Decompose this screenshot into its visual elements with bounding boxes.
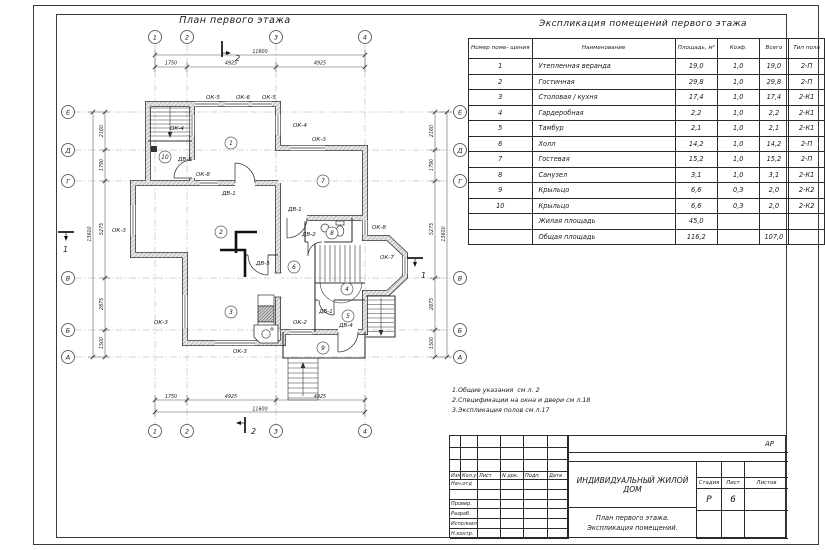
section-arrow	[236, 421, 241, 425]
room-number: 1	[229, 141, 233, 147]
staff-empty-cell	[548, 500, 568, 510]
staff-empty-cell	[478, 500, 501, 510]
titleblock-col-header: Подп.	[524, 472, 548, 480]
spec-cell-value: 6,6	[675, 198, 717, 214]
axis-bubble-label: Д	[64, 146, 70, 154]
axis-bubble-label: Б	[66, 326, 71, 334]
amendment-cell	[548, 460, 568, 472]
project-code: АР	[765, 440, 774, 448]
title-block: Изм.Кол.учЛистN док.Подп.Дата Нач.отдПро…	[449, 435, 786, 538]
axis-bubble-label: Б	[458, 326, 463, 334]
plan-label: ОК-5	[262, 95, 276, 101]
spec-cell-name: Крыльцо	[532, 183, 675, 199]
dim-total-text: 13600	[87, 226, 93, 241]
spec-cell-value: 1,0	[717, 105, 759, 121]
spec-cell-value: 17,4	[675, 90, 717, 106]
amendment-cell	[461, 460, 478, 472]
spec-cell-value: 0,3	[717, 183, 759, 199]
stage-label: Стадия	[697, 478, 722, 489]
spec-cell-value: 15,2	[675, 152, 717, 168]
spec-cell-name: Крыльцо	[532, 198, 675, 214]
axis-bubble-label: А	[65, 353, 70, 361]
spec-cell-name: Тамбур	[532, 121, 675, 137]
spec-row: 1Утепленная веранда19,01,019,02-П	[469, 59, 825, 75]
axis-bubble-label: 3	[274, 33, 278, 41]
staff-role-label: Провер.	[450, 500, 478, 510]
dim-total-text: 11600	[252, 49, 267, 55]
axis-bubble-label: 3	[274, 427, 278, 435]
spec-cell-value: 6	[469, 136, 533, 152]
spec-cell-value: 19,0	[675, 59, 717, 75]
spec-cell-value: 15,2	[759, 152, 789, 168]
sheet-label: Лист	[722, 478, 745, 489]
spec-cell-value: 2-К1	[789, 105, 825, 121]
spec-row: 7Гостевая15,21,015,22-П	[469, 152, 825, 168]
spec-cell-value	[469, 229, 533, 245]
dim-text: 2875	[429, 298, 435, 310]
amendment-cell	[524, 460, 548, 472]
spec-cell-name: Общая площадь	[532, 229, 675, 245]
plan-label: ОК-8	[196, 172, 210, 178]
spec-col-header: Коэф.	[717, 39, 759, 59]
sheet-number: 6	[722, 489, 745, 511]
amendment-cell	[478, 436, 501, 448]
section-number: 1	[421, 271, 426, 280]
plan-label: ДВ-1	[221, 191, 236, 197]
plan-label: ОК-5	[206, 95, 220, 101]
spec-cell-name: Гостинная	[532, 74, 675, 90]
spec-row: 8Санузел3,11,03,12-К1	[469, 167, 825, 183]
axis-bubble-label: 2	[185, 427, 189, 435]
staff-empty-cell	[501, 519, 524, 529]
spec-cell-name: Утепленная веранда	[532, 59, 675, 75]
spec-cell-value: 1,0	[717, 90, 759, 106]
axis-bubbles: 11223344ЕЕДДГГВВББАА	[62, 31, 467, 438]
spec-cell-value: 2-П	[789, 136, 825, 152]
spec-cell-value: 2,0	[759, 198, 789, 214]
spec-cell-value: 2-П	[789, 74, 825, 90]
room-number: 4	[345, 287, 349, 293]
staff-empty-cell	[478, 480, 501, 490]
amendment-cell	[450, 436, 461, 448]
staff-empty-cell	[548, 509, 568, 519]
note-line: 1.Общие указания см л. 2	[452, 386, 590, 396]
note-line: 2.Спецификации на окна и двери см л.18	[452, 396, 590, 406]
sheets-value	[745, 489, 788, 511]
note-line: 3.Экспликация полов см л.17	[452, 406, 590, 416]
dim-total-text: 11600	[252, 407, 267, 413]
plan-label: ОК-3	[154, 320, 168, 326]
plan-label: ОК-4	[170, 126, 184, 132]
spec-cell-value: 2-П	[789, 152, 825, 168]
spec-cell-value: 6,6	[675, 183, 717, 199]
spec-cell-value: 2-К1	[789, 90, 825, 106]
section-number: 2	[251, 427, 256, 436]
spec-cell-value: 2,2	[759, 105, 789, 121]
spec-col-header: Тип пола	[789, 39, 825, 59]
spec-row: 3Столовая / кухня17,41,017,42-К1	[469, 90, 825, 106]
staff-empty-cell	[501, 529, 524, 539]
staff-role-label: Исполнил	[450, 519, 478, 529]
drawing-sheet: { "plan": { "title": "План первого этажа…	[0, 0, 825, 550]
axis-bubble-label: 4	[363, 427, 367, 435]
spec-cell-value: 3	[469, 90, 533, 106]
titleblock-staff-rows: Нач.отдПровер.Разраб.ИсполнилН.контр.	[450, 480, 568, 539]
spec-cell-value: 45,0	[675, 214, 717, 230]
spec-cell-value: 107,0	[759, 229, 789, 245]
amendment-grid	[450, 436, 568, 472]
titleblock-right: АР ИНДИВИДУАЛЬНЫЙ ЖИЛОЙ ДОМ План первого…	[568, 436, 787, 539]
spec-row: 10Крыльцо6,60,32,02-К2	[469, 198, 825, 214]
spec-row: 6Холл14,21,014,22-П	[469, 136, 825, 152]
staff-empty-cell	[524, 519, 548, 529]
staff-role-label: Нач.отд	[450, 480, 478, 490]
room-number: 5	[346, 314, 350, 320]
spec-cell-name: Столовая / кухня	[532, 90, 675, 106]
section-arrow	[226, 51, 231, 55]
plan-label: ДВ-4	[338, 323, 353, 329]
amendment-cell	[450, 448, 461, 460]
plan-label: ОК-6	[236, 95, 250, 101]
spec-cell-value: 2,1	[675, 121, 717, 137]
dim-text: 5275	[429, 223, 435, 235]
spec-cell-value: 9	[469, 183, 533, 199]
spec-cell-value: 1,0	[717, 74, 759, 90]
axis-bubble-label: В	[66, 274, 71, 282]
staff-empty-cell	[548, 490, 568, 500]
staff-role-label: Разраб.	[450, 509, 478, 519]
stage-value: Р	[697, 489, 722, 511]
spec-row: Жилая площадь45,0	[469, 214, 825, 230]
dim-text: 1750	[165, 61, 177, 67]
spec-cell-value: 116,2	[675, 229, 717, 245]
staff-empty-cell	[548, 519, 568, 529]
staff-empty-cell	[548, 480, 568, 490]
spec-cell-name: Гостевая	[532, 152, 675, 168]
dim-text: 1790	[99, 159, 105, 171]
section-number: 1	[63, 245, 68, 254]
spec-cell-value	[789, 214, 825, 230]
spec-cell-value: 10	[469, 198, 533, 214]
room-number: 2	[219, 230, 223, 236]
dim-text: 1790	[429, 159, 435, 171]
staff-empty-cell	[478, 509, 501, 519]
spec-cell-value	[789, 229, 825, 245]
titleblock-col-header: Лист	[478, 472, 501, 480]
spec-cell-value: 1,0	[717, 136, 759, 152]
spec-cell-value: 1,0	[717, 59, 759, 75]
titleblock-col-header: Дата	[548, 472, 568, 480]
staff-empty-cell	[478, 529, 501, 539]
plan-label: ДВ-1	[318, 309, 333, 315]
spec-cell-value: 2,0	[759, 183, 789, 199]
spec-cell-value: 8	[469, 167, 533, 183]
room-number: 9	[321, 346, 325, 352]
staff-empty-cell	[524, 509, 548, 519]
axis-bubble-label: В	[458, 274, 463, 282]
spec-cell-name: Жилая площадь	[532, 214, 675, 230]
spec-row: 9Крыльцо6,60,32,02-К2	[469, 183, 825, 199]
dim-text: 2160	[429, 125, 435, 137]
sheet-title-line1: План первого этажа.	[596, 514, 669, 524]
dim-text: 4925	[225, 394, 237, 400]
plan-label: ДВ-1	[287, 207, 302, 213]
spec-col-header: Площадь, м²	[675, 39, 717, 59]
spec-row: 5Тамбур2,11,02,12-К1	[469, 121, 825, 137]
spec-cell-value: 1,0	[717, 167, 759, 183]
staff-empty-cell	[524, 480, 548, 490]
sheet-title-line2: Экспликация помещений.	[587, 524, 678, 534]
titleblock-col-header: N док.	[501, 472, 524, 480]
amendment-cell	[548, 448, 568, 460]
spec-cell-value: 2,1	[759, 121, 789, 137]
spec-cell-value	[717, 229, 759, 245]
amendment-cell	[450, 460, 461, 472]
axis-bubble-label: Д	[456, 146, 462, 154]
spec-cell-value: 7	[469, 152, 533, 168]
spec-row: 2Гостинная29,81,029,82-П	[469, 74, 825, 90]
plan-label: ДВ-2	[301, 232, 316, 238]
axis-bubble-label: 1	[153, 427, 157, 435]
spec-table: Номер поме- щенияНаименованиеПлощадь, м²…	[468, 38, 825, 245]
spec-cell-value: 2-П	[789, 59, 825, 75]
plan-label: ОК-4	[293, 123, 307, 129]
spec-cell-value: 14,2	[759, 136, 789, 152]
spec-col-header: Номер поме- щения	[469, 39, 533, 59]
plan-label: ОК-8	[372, 225, 386, 231]
spec-cell-value	[717, 214, 759, 230]
dim-text: 1500	[429, 337, 435, 349]
spec-cell-name: Холл	[532, 136, 675, 152]
amendment-cell	[501, 436, 524, 448]
amendment-cell	[501, 448, 524, 460]
plan-label: ОК-2	[293, 320, 307, 326]
spec-cell-value: 2	[469, 74, 533, 90]
stage-block: Стадия Лист Листов Р 6	[697, 462, 788, 539]
spec-cell-value: 17,4	[759, 90, 789, 106]
spec-cell-value: 14,2	[675, 136, 717, 152]
floor-plan: 11223344ЕЕДДГГВВББАА 1750175049254925492…	[50, 10, 470, 450]
room-number: 3	[229, 310, 233, 316]
axis-bubble-label: 2	[185, 33, 189, 41]
amendment-cell	[461, 448, 478, 460]
sheets-label: Листов	[745, 478, 788, 489]
staff-empty-cell	[501, 500, 524, 510]
titleblock-col-header: Изм.	[450, 472, 461, 480]
dim-text: 2160	[99, 125, 105, 137]
plan-label: ОК-3	[233, 349, 247, 355]
plan-label: ДВ-5	[255, 261, 270, 267]
room-number: 7	[321, 179, 325, 185]
amendment-cell	[478, 460, 501, 472]
notes: 1.Общие указания см л. 22.Спецификации н…	[452, 386, 590, 416]
amendment-cell	[461, 436, 478, 448]
titleblock-strip	[569, 453, 788, 462]
spec-cell-name: Санузел	[532, 167, 675, 183]
section-number: 2	[235, 54, 240, 63]
spec-cell-name: Гардеробная	[532, 105, 675, 121]
spec-cell-value: 2-К1	[789, 167, 825, 183]
spec-cell-value: 1,0	[717, 121, 759, 137]
spec-cell-value: 0,3	[717, 198, 759, 214]
spec-cell-value: 29,8	[675, 74, 717, 90]
staff-empty-cell	[478, 490, 501, 500]
staff-empty-cell	[501, 490, 524, 500]
staff-empty-cell	[478, 519, 501, 529]
spec-cell-value: 4	[469, 105, 533, 121]
spec-cell-value: 1	[469, 59, 533, 75]
room-number: 8	[330, 231, 334, 237]
spec-cell-value: 3,1	[675, 167, 717, 183]
staff-role-label: Н.контр.	[450, 529, 478, 539]
section-arrow	[413, 262, 417, 267]
dim-text: 1500	[99, 337, 105, 349]
plan-label: ОК-7	[380, 255, 394, 261]
spec-row: Общая площадь116,2107,0	[469, 229, 825, 245]
doc-title: ИНДИВИДУАЛЬНЫЙ ЖИЛОЙ ДОМ	[569, 462, 697, 508]
spec-row: 4Гардеробная2,21,02,22-К1	[469, 105, 825, 121]
staff-empty-cell	[524, 500, 548, 510]
amendment-cell	[501, 460, 524, 472]
dim-text: 2875	[99, 298, 105, 310]
axis-bubble-label: 1	[153, 33, 157, 41]
amendment-cell	[478, 448, 501, 460]
titleblock-col-header: Кол.уч	[461, 472, 478, 480]
spec-col-header: Всего	[759, 39, 789, 59]
plan-label: ОК-3	[312, 137, 326, 143]
spec-cell-value: 3,1	[759, 167, 789, 183]
room-number: 6	[292, 265, 296, 271]
dim-total-text: 13600	[441, 226, 447, 241]
dim-text: 1750	[165, 394, 177, 400]
staff-role-label	[450, 490, 478, 500]
axis-bubble-label: А	[457, 353, 462, 361]
spec-col-header: Наименование	[532, 39, 675, 59]
spec-cell-value: 2-К1	[789, 121, 825, 137]
dim-text: 4925	[314, 61, 326, 67]
spec-cell-value: 2-К2	[789, 183, 825, 199]
spec-cell-value: 2-К2	[789, 198, 825, 214]
spec-cell-value: 5	[469, 121, 533, 137]
spec-cell-value	[469, 214, 533, 230]
staff-empty-cell	[501, 509, 524, 519]
spec-cell-value: 1,0	[717, 152, 759, 168]
plan-label: ОК-3	[112, 228, 126, 234]
sheet-title: План первого этажа. Экспликация помещени…	[569, 508, 697, 539]
titleblock-header-row: Изм.Кол.учЛистN док.Подп.Дата	[450, 472, 568, 480]
axis-bubble-label: 4	[363, 33, 367, 41]
spec-cell-value: 19,0	[759, 59, 789, 75]
spec-cell-value: 2,2	[675, 105, 717, 121]
spec-table-title: Экспликация помещений первого этажа	[500, 19, 786, 29]
amendment-cell	[524, 436, 548, 448]
staff-empty-cell	[548, 529, 568, 539]
amendment-cell	[524, 448, 548, 460]
staff-empty-cell	[524, 529, 548, 539]
spec-header-row: Номер поме- щенияНаименованиеПлощадь, м²…	[469, 39, 825, 59]
section-arrow	[64, 236, 68, 241]
project-code-cell: АР	[569, 436, 788, 453]
spec-cell-value: 29,8	[759, 74, 789, 90]
dim-text: 5275	[99, 223, 105, 235]
amendment-cell	[548, 436, 568, 448]
dim-text: 4925	[314, 394, 326, 400]
staff-empty-cell	[501, 480, 524, 490]
staff-empty-cell	[524, 490, 548, 500]
room-number: 10	[161, 155, 169, 161]
plan-label: ДВ-6	[177, 157, 192, 163]
spec-cell-value	[759, 214, 789, 230]
